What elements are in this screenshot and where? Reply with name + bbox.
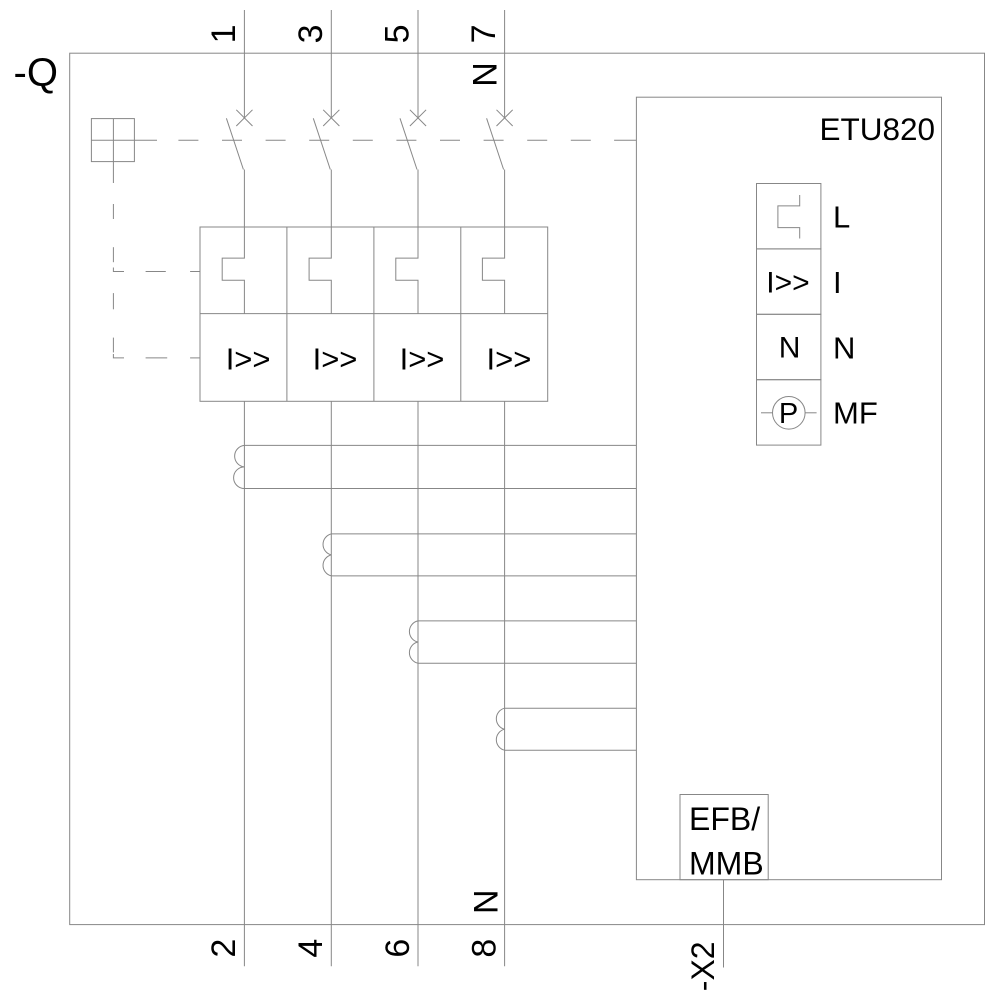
svg-text:P: P xyxy=(779,398,798,430)
svg-text:2: 2 xyxy=(205,939,243,958)
svg-text:I>>: I>> xyxy=(313,341,358,376)
svg-text:L: L xyxy=(833,200,850,235)
svg-text:-Q: -Q xyxy=(14,51,58,95)
svg-text:-X2: -X2 xyxy=(685,941,721,991)
svg-text:MF: MF xyxy=(833,396,878,431)
svg-text:I>>: I>> xyxy=(487,341,532,376)
svg-text:N: N xyxy=(779,332,801,365)
svg-text:ETU820: ETU820 xyxy=(819,111,935,147)
svg-text:7: 7 xyxy=(465,24,503,43)
svg-text:8: 8 xyxy=(465,939,503,958)
svg-text:5: 5 xyxy=(379,24,417,43)
svg-text:I: I xyxy=(833,265,842,300)
svg-text:N: N xyxy=(466,62,504,87)
svg-text:I>>: I>> xyxy=(400,341,445,376)
svg-text:I>>: I>> xyxy=(226,341,271,376)
svg-text:EFB/: EFB/ xyxy=(689,801,760,837)
svg-text:N: N xyxy=(468,889,506,914)
svg-text:MMB: MMB xyxy=(689,845,764,881)
svg-text:N: N xyxy=(833,330,855,365)
svg-text:3: 3 xyxy=(292,24,330,43)
svg-text:1: 1 xyxy=(205,24,243,43)
svg-text:6: 6 xyxy=(379,939,417,958)
svg-text:4: 4 xyxy=(292,939,330,958)
svg-text:I>>: I>> xyxy=(766,267,809,300)
